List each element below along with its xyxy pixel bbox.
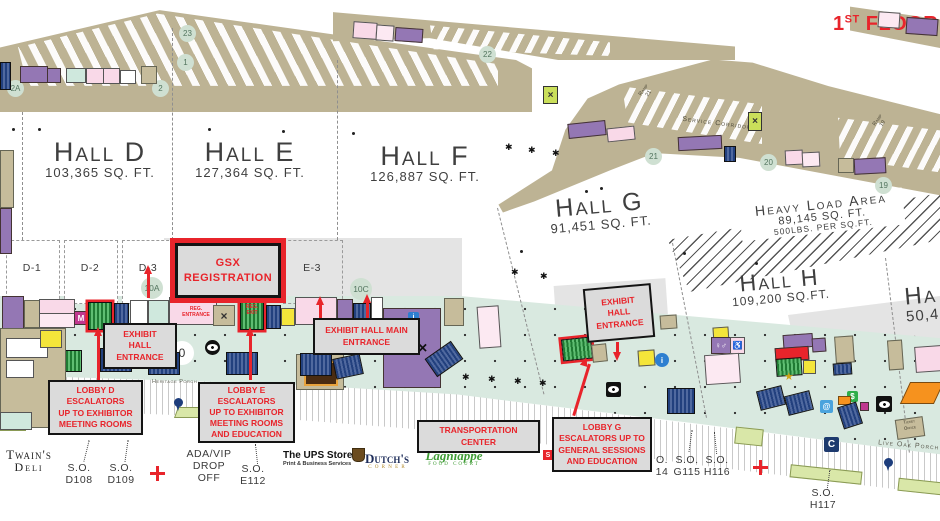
hall-d-label: Hall D 103,365 SQ. FT. <box>35 138 165 180</box>
column-dot <box>352 132 355 135</box>
internet-at-icon: @ <box>820 400 833 413</box>
column-dot <box>38 128 41 131</box>
room-block <box>877 11 900 28</box>
lobby-e-escalators-callout: LOBBY E ESCALATORS UP TO EXHIBITOR MEETI… <box>198 382 295 443</box>
marker-1: 1 <box>177 54 194 71</box>
map-pin-icon <box>174 398 183 407</box>
room-block <box>914 345 940 373</box>
room-block <box>0 208 12 254</box>
lobby-d-escalators-callout: LOBBY D ESCALATORS UP TO EXHIBITOR MEETI… <box>48 380 143 435</box>
column-dot <box>585 190 588 193</box>
arrow-lobby-e-head <box>246 327 254 336</box>
escalator <box>724 146 736 162</box>
room-block <box>39 299 75 314</box>
hall-separator <box>22 112 23 240</box>
ticket-office-sign: Ticket Office <box>895 416 926 440</box>
planter-icon: ✱ <box>488 375 496 384</box>
first-aid-cross-icon <box>150 466 165 481</box>
freight-elevator-icon: × <box>543 86 558 104</box>
so-d108-label: S.O. D108 <box>60 462 98 486</box>
planter-icon: ✱ <box>528 146 536 155</box>
hall-separator <box>337 60 338 240</box>
planter-icon: ✱ <box>505 143 513 152</box>
room-block <box>375 24 394 41</box>
room-block <box>660 314 678 329</box>
room-block <box>785 150 804 166</box>
arrow-exhibit-g-head <box>613 352 621 361</box>
room-block <box>704 353 741 385</box>
escalator <box>300 353 332 376</box>
room-d2-label: D-2 <box>74 262 106 274</box>
transportation-center-callout: TRANSPORTATION CENTER <box>417 420 540 453</box>
room-block <box>444 298 464 326</box>
exhibit-hall-entrance-g-callout: EXHIBIT HALL ENTRANCE <box>583 283 655 343</box>
room-block <box>352 21 377 40</box>
room-block <box>281 308 295 326</box>
so-e112-label: S.O. E112 <box>234 463 272 487</box>
room-block <box>477 305 502 348</box>
escalator <box>833 362 853 375</box>
room-block <box>120 70 136 84</box>
escalator <box>266 305 281 329</box>
room-block <box>6 360 34 378</box>
room-block <box>24 300 40 328</box>
room-d1-label: D-1 <box>16 262 48 274</box>
so-d109-label: S.O. D109 <box>102 462 140 486</box>
marker-21: 21 <box>645 148 662 165</box>
marker-22: 22 <box>479 46 496 63</box>
dutchs-corner-logo: Dutch's C O R N E R <box>358 452 416 470</box>
room-block <box>678 135 723 151</box>
escalator <box>0 62 11 90</box>
restroom-m-icon: M <box>74 311 88 325</box>
so-h116-label: S.O. H116 <box>698 454 736 478</box>
restroom-men-icon: ♀♂ <box>711 337 731 354</box>
room-block <box>40 330 62 348</box>
column-dot <box>282 130 285 133</box>
escalator <box>226 352 258 375</box>
info-icon: i <box>655 353 669 367</box>
marker-23: 23 <box>179 25 196 42</box>
freight-elevator-icon: × <box>748 112 762 131</box>
marker-19: 19 <box>875 177 892 194</box>
crate-icon: × <box>213 305 235 326</box>
room-block <box>802 152 821 168</box>
planter-icon: ✱ <box>540 272 548 281</box>
room-block <box>103 68 120 84</box>
room-e3-label: E-3 <box>296 262 328 274</box>
arrow-lobby-d-head <box>94 327 102 336</box>
planter-icon: ✱ <box>511 268 519 277</box>
marker-10a: 10A <box>141 277 163 299</box>
arrow-10a <box>147 272 150 298</box>
leader-line <box>124 440 128 462</box>
room-block <box>47 68 61 83</box>
camera-eye-icon <box>205 340 220 355</box>
arrow-lobby-e <box>249 334 252 380</box>
reg-entrance-label: REG. ENTRANCE <box>178 306 214 318</box>
room-block <box>905 17 938 36</box>
room-block <box>591 343 608 362</box>
planter-icon: ✱ <box>539 379 547 388</box>
room-block <box>838 158 854 173</box>
room-block <box>803 360 816 374</box>
column-dot <box>208 128 211 131</box>
hall-partial-label: Ha 50,4 <box>903 279 940 325</box>
marker-20: 20 <box>760 154 777 171</box>
column-dot <box>520 250 523 253</box>
room-block <box>887 340 904 371</box>
column-dot <box>755 262 758 265</box>
so-h117-label: S.O. H117 <box>804 487 842 511</box>
escalator <box>667 388 695 414</box>
arrow-10a-head <box>144 265 152 274</box>
room-block <box>66 68 86 83</box>
room-block <box>39 313 75 328</box>
camera-eye-icon <box>876 396 892 412</box>
room-block <box>0 412 32 430</box>
hall-e-label: Hall E 127,364 SQ. FT. <box>185 138 315 180</box>
arrow-main-1-head <box>316 296 324 305</box>
gsx-registration-callout: GSX REGISTRATION <box>175 243 281 298</box>
room-block <box>20 66 48 83</box>
room-block <box>854 157 887 175</box>
hall-f-label: Hall F 126,887 SQ. FT. <box>360 142 490 184</box>
landscape-strip <box>734 427 764 447</box>
ada-vip-dropoff-label: ADA/VIP DROP OFF <box>182 448 236 484</box>
first-aid-cross-icon <box>753 460 768 475</box>
star-icon: ★ <box>784 370 794 383</box>
hall-g-label: Hall G 91,451 SQ. FT. <box>534 186 667 237</box>
twains-deli-logo: Twain's Deli <box>0 448 58 473</box>
planter-icon: ✱ <box>514 377 522 386</box>
floor-plan: D-1 D-2 D-3 E-3 Hall D 103,365 SQ. FT. H… <box>0 0 940 521</box>
arrow-main-2-head <box>363 294 371 303</box>
room-block <box>606 126 635 143</box>
planter-icon: ✱ <box>552 149 560 158</box>
room-block <box>86 68 104 84</box>
exhibit-hall-entrance-d-callout: EXHIBIT HALL ENTRANCE <box>103 323 177 369</box>
heritage-porch-label: Heritage Porch <box>152 379 197 385</box>
room-block <box>141 66 157 84</box>
restroom-accessible-icon: ♿ <box>730 337 745 354</box>
column-dot <box>12 128 15 131</box>
planter-icon: ✱ <box>462 373 470 382</box>
leader-line <box>255 444 258 464</box>
hall-separator <box>172 28 173 240</box>
leader-line <box>83 440 89 462</box>
arrow-lobby-d <box>97 334 100 380</box>
room-block <box>2 296 24 332</box>
map-pin-icon <box>884 458 893 467</box>
room-block <box>812 338 827 353</box>
concourse-c-icon: C <box>824 437 839 452</box>
room-block <box>0 150 14 208</box>
room-block <box>860 402 869 411</box>
room-block <box>65 350 82 372</box>
exhibit-hall-main-entrance-callout: EXHIBIT HALL MAIN ENTRANCE <box>313 318 420 355</box>
room-block <box>637 349 655 366</box>
room-block <box>395 27 424 43</box>
lobby-g-escalators-callout: LOBBY G ESCALATORS UP TO GENERAL SESSION… <box>552 417 652 472</box>
reg-exit-label: REG. EXIT <box>240 304 264 316</box>
camera-eye-icon <box>606 382 621 397</box>
room-block <box>834 335 855 363</box>
column-dot <box>683 252 686 255</box>
column-dot <box>600 187 603 190</box>
